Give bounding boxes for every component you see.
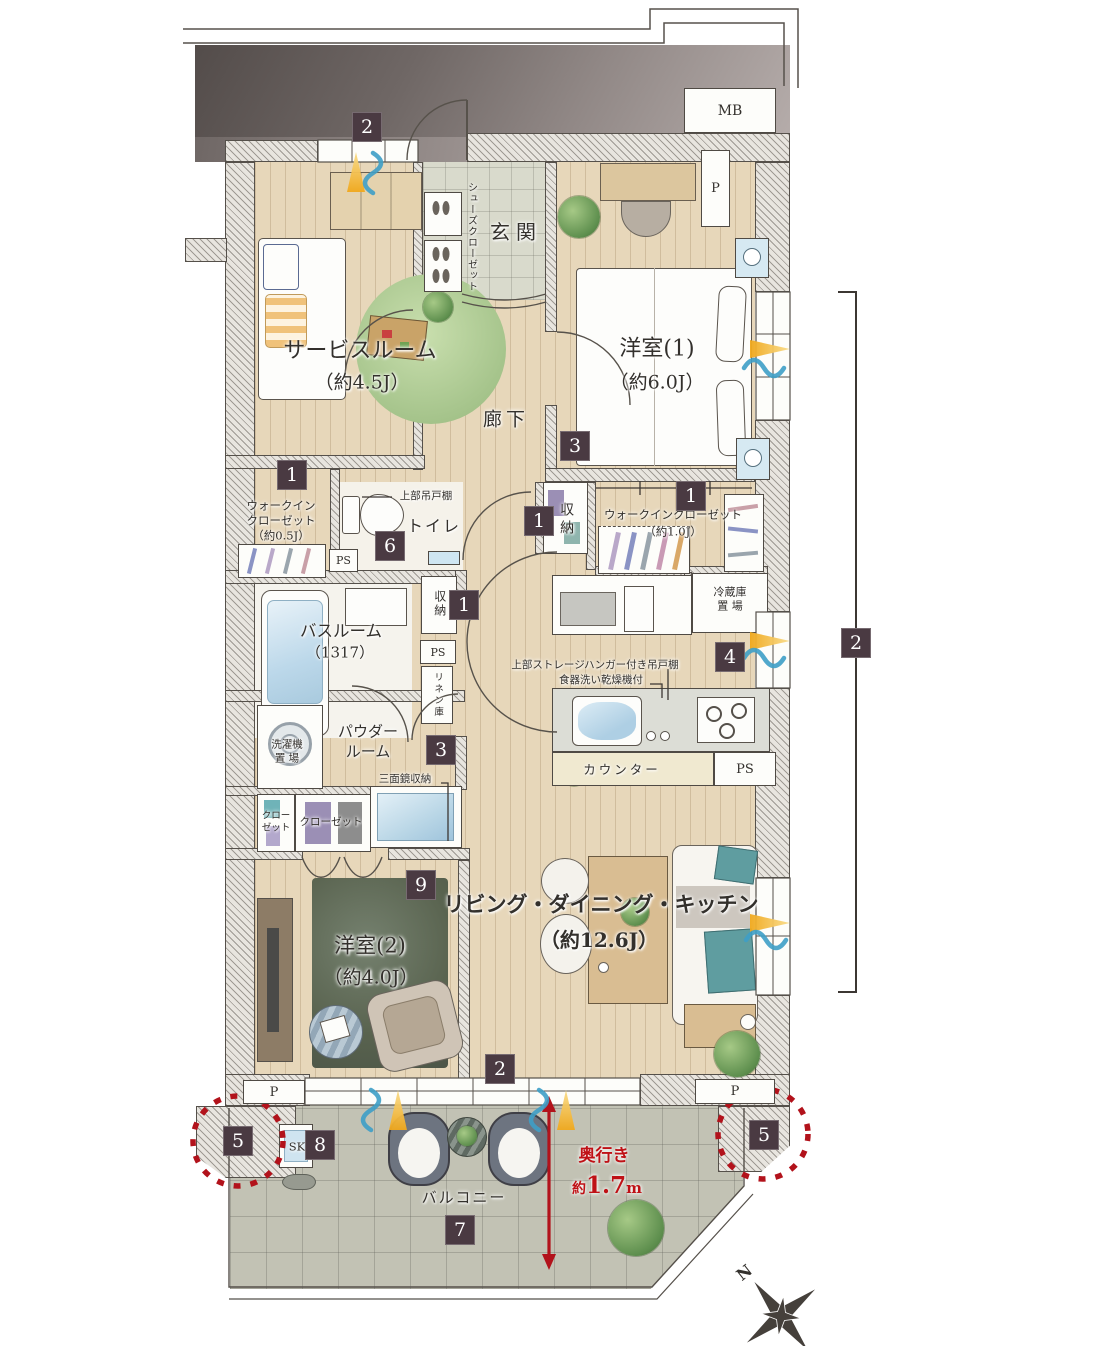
badge-west1: 3 [560,431,590,461]
label-storage-low: 収納 [431,590,447,618]
floor-plan: MB P PS PS PS P P サービスルーム （約4.5J） 玄関 シュー… [0,0,1120,1346]
p-label: P [270,1085,279,1100]
fridge-line2: 置 場 [717,600,743,613]
room-label-genkan: 玄関 [490,219,542,245]
p-label: P [731,1084,740,1099]
label-sk: SK [289,1140,305,1155]
pipe-space-bottom-right: P [695,1079,775,1104]
label-kitchen-note1: 上部ストレージハンガー付き吊戸棚 [511,659,678,673]
badge-storage-mid: 1 [524,506,554,536]
laundry-line1: 洗濯機 [271,738,303,750]
badge-west2: 9 [406,870,436,900]
label-wic-small: ウォークイン クローゼット （約0.5J） [247,499,316,544]
wic-small-line2: クローゼット [247,514,316,528]
label-closet-small: クロー ゼット [262,811,291,836]
room-label-toilet: トイレ [407,517,461,538]
closet-small-line2: ゼット [262,823,291,834]
room-label-west2: 洋室(2) [334,932,406,959]
plan-linework [0,0,1120,1346]
depth-value: 1.7 [586,1172,626,1199]
mb-label: MB [718,103,743,119]
size-wic-large: （約1.0J） [644,525,701,540]
badge-south-window: 2 [485,1054,515,1084]
depth-unit: m [626,1179,642,1197]
badge-right-wall: 2 [841,628,871,658]
label-laundry: 洗濯機 置 場 [271,738,303,765]
ps-toilet: PS [329,549,358,572]
room-label-hallway: 廊下 [483,408,529,433]
badge-entry-window: 2 [352,112,382,142]
depth-annotation-title: 奥行き [579,1145,630,1167]
wic-small-line1: ウォークイン [247,499,316,513]
badge-wic-small: 1 [277,460,307,490]
pipe-space-bottom-left: P [243,1080,305,1104]
room-label-ldk: リビング・ダイニング・キッチン [444,890,759,917]
label-shoes-closet: シューズクローゼット [465,182,478,292]
room-label-west1: 洋室(1) [619,336,694,365]
room-size-west2: （約4.0J） [324,966,419,991]
badge-balcony: 7 [445,1215,475,1245]
depth-annotation-value: 約1.7m [572,1171,642,1201]
badge-wic-large: 1 [676,481,706,511]
label-mirror-storage: 三面鏡収納 [379,773,432,787]
room-label-balcony: バルコニー [422,1188,507,1208]
room-label-service: サービスルーム [283,338,436,367]
badge-pillar-left: 5 [223,1126,253,1156]
ps-label: PS [431,646,446,659]
badge-pillar-right: 5 [749,1120,779,1150]
label-fridge: 冷蔵庫 置 場 [714,586,747,615]
label-upper-shelf: 上部吊戸棚 [400,490,453,504]
powder-line1: パウダー [338,723,398,741]
p-label: P [711,181,720,196]
label-wic-large: ウォークインクローゼット [604,508,742,523]
badge-slop-sink: 8 [305,1130,335,1160]
room-label-powder: パウダー ルーム [338,723,398,762]
depth-approx: 約 [572,1181,586,1197]
room-size-bathroom: （1317） [306,643,374,663]
pipe-space-top: P [701,150,730,227]
room-size-ldk: （約12.6J） [540,927,658,953]
closet-small-line1: クロー [262,811,291,822]
label-counter: カウンター [583,762,661,778]
label-kitchen-note2: 食器洗い乾燥機付 [559,674,643,688]
wic-small-size: （約0.5J） [252,528,309,542]
badge-toilet: 6 [375,531,405,561]
ps-label: PS [736,762,754,777]
room-label-bathroom: バスルーム [300,620,382,641]
badge-kitchen: 4 [715,642,745,672]
label-linen: リネン庫 [431,672,443,718]
ps-kitchen: PS [714,752,776,786]
ps-label: PS [336,554,351,567]
badge-powder: 3 [426,735,456,765]
label-storage-mid: 収納 [557,502,575,538]
badge-storage-low: 1 [449,590,479,620]
fridge-line1: 冷蔵庫 [714,586,747,599]
room-size-service: （約4.5J） [315,371,410,396]
meter-box: MB [684,88,776,133]
laundry-line2: 置 場 [275,752,299,764]
label-closet-wide: クローゼット [300,816,363,830]
powder-line2: ルーム [346,742,391,760]
ps-hall: PS [420,640,456,664]
room-size-west1: （約6.0J） [610,371,705,396]
